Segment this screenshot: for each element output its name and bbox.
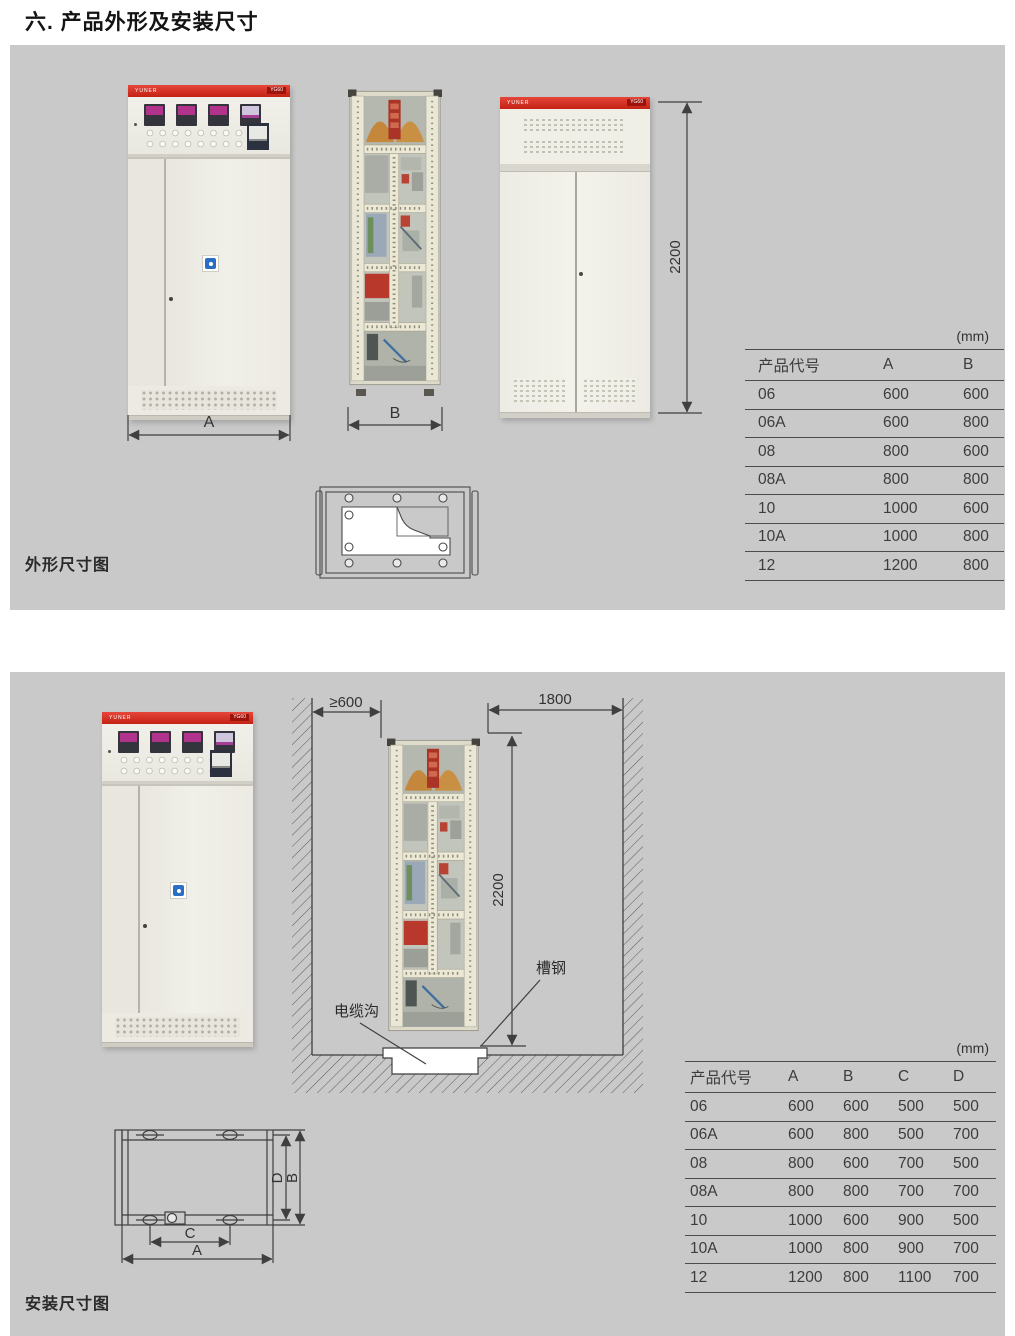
brand-label: YUNER — [109, 715, 132, 721]
dim-label-B: B — [390, 405, 401, 422]
table-cell: 800 — [788, 1178, 843, 1207]
table-cell: 10 — [745, 495, 883, 524]
table-cell: 1000 — [788, 1207, 843, 1236]
column-header: 产品代号 — [685, 1062, 788, 1093]
install-caption: 安装尺寸图 — [25, 1290, 110, 1314]
table-row: 121200800 — [745, 552, 1004, 581]
dim-label-left-clearance: ≥600 — [329, 694, 362, 711]
meter-icon — [182, 731, 203, 753]
table-cell: 08A — [745, 466, 883, 495]
table-cell: 700 — [953, 1121, 996, 1150]
table-row: 101000600 — [745, 495, 1004, 524]
outline-caption: 外形尺寸图 — [25, 551, 110, 575]
table-cell: 12 — [685, 1264, 788, 1293]
table-cell: 800 — [843, 1178, 898, 1207]
plan-dim-C: C — [185, 1225, 196, 1242]
table-cell: 600 — [788, 1121, 843, 1150]
table-cell: 800 — [963, 523, 1004, 552]
column-header: D — [953, 1062, 996, 1093]
dim-label-height: 2200 — [490, 873, 507, 906]
door-lock-icon — [143, 924, 147, 928]
table-cell: 800 — [883, 438, 963, 467]
screw-icon — [108, 750, 111, 753]
table-row: 08A800800 — [745, 466, 1004, 495]
table-cell: 700 — [953, 1264, 996, 1293]
model-label: YG60 — [230, 714, 249, 721]
table-row: 101000600900500 — [685, 1207, 996, 1236]
column-header: C — [898, 1062, 953, 1093]
right-wall-hatch — [623, 698, 643, 1055]
table-cell: 500 — [953, 1150, 996, 1179]
table-cell: 10 — [685, 1207, 788, 1236]
table-cell: 600 — [843, 1207, 898, 1236]
table-cell: 500 — [953, 1207, 996, 1236]
meter-icon — [150, 731, 171, 753]
table-cell: 600 — [963, 495, 1004, 524]
dim-label-right-clearance: 1800 — [538, 691, 571, 708]
table-row: 08800600 — [745, 438, 1004, 467]
install-table: 产品代号ABCD 0660060050050006A60080050070008… — [685, 1061, 996, 1293]
cable-trench-shape — [383, 1048, 487, 1074]
table-cell: 700 — [898, 1150, 953, 1179]
column-header: A — [883, 350, 963, 381]
table-cell: 800 — [788, 1150, 843, 1179]
channel-steel-label: 槽钢 — [536, 960, 566, 977]
table-row: 06600600 — [745, 381, 1004, 410]
table-cell: 600 — [883, 381, 963, 410]
table-cell: 700 — [953, 1178, 996, 1207]
install-dimension-table: (mm) 产品代号ABCD 0660060050050006A600800500… — [685, 1040, 991, 1293]
table-cell: 600 — [843, 1150, 898, 1179]
cabinet-banner: YUNER YG60 — [102, 712, 253, 724]
table-row: 10A1000800900700 — [685, 1235, 996, 1264]
column-header: B — [843, 1062, 898, 1093]
table-cell: 700 — [898, 1178, 953, 1207]
table-cell: 800 — [963, 409, 1004, 438]
column-header: B — [963, 350, 1004, 381]
open-frame-cabinet — [387, 739, 480, 1031]
vent-grille — [102, 1013, 253, 1042]
table-cell: 06 — [745, 381, 883, 410]
table-cell: 500 — [953, 1093, 996, 1122]
cabinet-door — [102, 784, 253, 1013]
table-row: 10A1000800 — [745, 523, 1004, 552]
column-header: A — [788, 1062, 843, 1093]
table-row: 08800600700500 — [685, 1150, 996, 1179]
column-header: 产品代号 — [745, 350, 883, 381]
table-cell: 800 — [963, 552, 1004, 581]
indicator-lamps-row — [120, 767, 222, 775]
multifunction-meter-icon — [210, 750, 232, 777]
table-cell: 500 — [898, 1121, 953, 1150]
table-row: 06A600800500700 — [685, 1121, 996, 1150]
cabinet-front-photo: YUNER YG60 — [102, 712, 253, 1047]
table-cell: 800 — [963, 466, 1004, 495]
meter-icon — [118, 731, 139, 753]
table-cell: 08 — [745, 438, 883, 467]
unit-label: (mm) — [745, 328, 991, 349]
outline-dimension-table: (mm) 产品代号AB 0660060006A6008000880060008A… — [745, 328, 991, 581]
left-wall-hatch — [292, 698, 312, 1055]
table-cell: 06A — [745, 409, 883, 438]
outline-table: 产品代号AB 0660060006A6008000880060008A80080… — [745, 349, 1004, 581]
table-cell: 500 — [898, 1093, 953, 1122]
installation-diagram: ≥600 1800 2200 槽钢 电缆沟 — [290, 690, 660, 1115]
table-cell: 06A — [685, 1121, 788, 1150]
indicator-lamps-row — [120, 756, 222, 764]
table-cell: 800 — [843, 1264, 898, 1293]
brand-logo-icon — [170, 882, 187, 899]
table-row: 06A600800 — [745, 409, 1004, 438]
plan-dim-B: B — [284, 1173, 301, 1183]
table-cell: 08 — [685, 1150, 788, 1179]
table-row: 06600600500500 — [685, 1093, 996, 1122]
instrument-panel — [102, 724, 253, 784]
plan-dim-A: A — [192, 1242, 202, 1259]
table-cell: 800 — [843, 1235, 898, 1264]
table-cell: 1000 — [788, 1235, 843, 1264]
table-cell: 800 — [843, 1121, 898, 1150]
table-cell: 800 — [883, 466, 963, 495]
table-cell: 600 — [843, 1093, 898, 1122]
table-cell: 1200 — [883, 552, 963, 581]
table-cell: 600 — [963, 381, 1004, 410]
cabinet-base — [102, 1042, 253, 1047]
unit-label: (mm) — [685, 1040, 991, 1061]
dim-label-A: A — [204, 414, 215, 431]
table-cell: 600 — [963, 438, 1004, 467]
table-cell: 1100 — [898, 1264, 953, 1293]
table-cell: 10A — [685, 1235, 788, 1264]
table-cell: 1000 — [883, 523, 963, 552]
table-cell: 900 — [898, 1235, 953, 1264]
table-cell: 06 — [685, 1093, 788, 1122]
table-cell: 1000 — [883, 495, 963, 524]
table-header-row: 产品代号ABCD — [685, 1062, 996, 1093]
gland-plate-drawing — [316, 487, 478, 578]
foundation-plan-drawing: C A D B — [108, 1116, 328, 1276]
page-title: 六. 产品外形及安装尺寸 — [25, 6, 259, 36]
door-seam — [138, 786, 140, 1013]
table-cell: 900 — [898, 1207, 953, 1236]
dim-label-2200: 2200 — [667, 240, 684, 273]
table-cell: 10A — [745, 523, 883, 552]
table-cell: 600 — [788, 1093, 843, 1122]
catalog-page: 六. 产品外形及安装尺寸 YUNER YG60 — [0, 0, 1015, 1336]
cable-trench-label: 电缆沟 — [334, 1003, 379, 1020]
table-cell: 1200 — [788, 1264, 843, 1293]
table-cell: 600 — [883, 409, 963, 438]
table-cell: 700 — [953, 1235, 996, 1264]
table-row: 08A800800700700 — [685, 1178, 996, 1207]
table-row: 1212008001100700 — [685, 1264, 996, 1293]
table-cell: 08A — [685, 1178, 788, 1207]
table-cell: 12 — [745, 552, 883, 581]
table-header-row: 产品代号AB — [745, 350, 1004, 381]
